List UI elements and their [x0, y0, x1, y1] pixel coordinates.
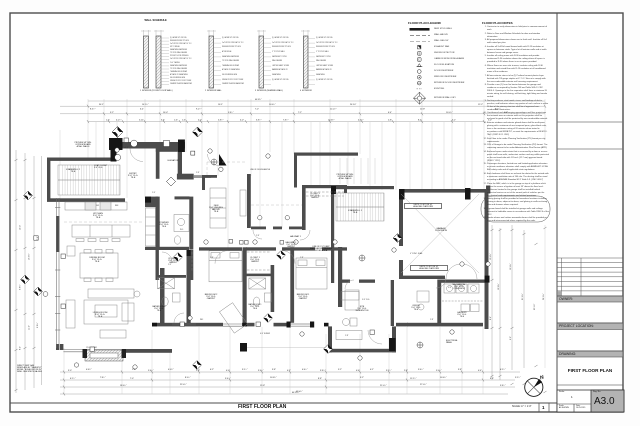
svg-text:16'-1": 16'-1"	[218, 104, 223, 106]
svg-text:LINE OF CEILING ABOVE: LINE OF CEILING ABOVE	[250, 168, 271, 171]
svg-text:2'-4": 2'-4"	[152, 192, 156, 194]
svg-text:7'-4": 7'-4"	[37, 236, 39, 240]
svg-text:6'-4": 6'-4"	[140, 109, 144, 111]
svg-text:7'-0": 7'-0"	[130, 378, 134, 380]
svg-text:REF: REF	[115, 205, 118, 207]
svg-text:8'-4": 8'-4"	[490, 316, 492, 320]
svg-text:2'-8" x 6'-8": 2'-8" x 6'-8"	[120, 147, 129, 149]
svg-text:2'-8": 2'-8"	[300, 257, 304, 259]
svg-text:8'-2": 8'-2"	[20, 346, 22, 350]
svg-text:6'-6": 6'-6"	[490, 378, 494, 380]
svg-text:34'-1": 34'-1"	[99, 104, 104, 106]
svg-text:3'-0": 3'-0"	[68, 370, 72, 372]
svg-text:2'-8": 2'-8"	[210, 257, 214, 259]
svg-text:2'-6": 2'-6"	[196, 172, 200, 174]
svg-text:DW: DW	[96, 205, 99, 207]
svg-text:C: C	[418, 58, 420, 62]
svg-text:4" CONC. SLAB: 4" CONC. SLAB	[410, 252, 423, 255]
svg-text:2'-0": 2'-0"	[168, 264, 172, 266]
svg-text:4'-4": 4'-4"	[478, 370, 482, 372]
svg-text:9'-0" CLG: 9'-0" CLG	[362, 299, 370, 301]
svg-text:9'-2": 9'-2"	[110, 112, 114, 114]
svg-text:24'-10": 24'-10"	[350, 104, 356, 106]
svg-text:2'-8": 2'-8"	[388, 120, 392, 122]
svg-text:44'-8¾": 44'-8¾"	[255, 98, 262, 101]
svg-text:5'-11": 5'-11"	[139, 120, 144, 122]
svg-text:25'-10": 25'-10"	[534, 304, 536, 310]
svg-text:2'-8": 2'-8"	[345, 335, 349, 337]
svg-text:4'-0": 4'-0"	[240, 120, 244, 122]
svg-text:2'-8": 2'-8"	[430, 319, 434, 321]
svg-text:16'-4": 16'-4"	[163, 112, 168, 114]
svg-text:8'-8": 8'-8"	[318, 378, 322, 380]
svg-text:11'-0": 11'-0"	[29, 325, 31, 330]
svg-text:6'-0" SLIDER: 6'-0" SLIDER	[260, 333, 271, 335]
svg-text:1'-6": 1'-6"	[182, 120, 186, 122]
svg-text:2'-6": 2'-6"	[256, 235, 260, 237]
svg-text:W.C.: W.C.	[180, 229, 184, 231]
svg-text:9'-2": 9'-2"	[510, 336, 512, 340]
svg-text:4'-6¼": 4'-6¼"	[358, 119, 364, 122]
svg-text:12'-4": 12'-4"	[20, 225, 22, 230]
svg-text:7'-0": 7'-0"	[255, 109, 259, 111]
svg-text:7'-2": 7'-2"	[298, 112, 302, 114]
svg-text:6'-2": 6'-2"	[452, 120, 456, 122]
svg-text:S: S	[418, 52, 420, 56]
svg-text:6'-4": 6'-4"	[388, 112, 392, 114]
svg-text:10'-8": 10'-8"	[420, 109, 425, 111]
svg-text:1'-6": 1'-6"	[174, 120, 178, 122]
svg-text:15'-8": 15'-8"	[260, 385, 265, 387]
